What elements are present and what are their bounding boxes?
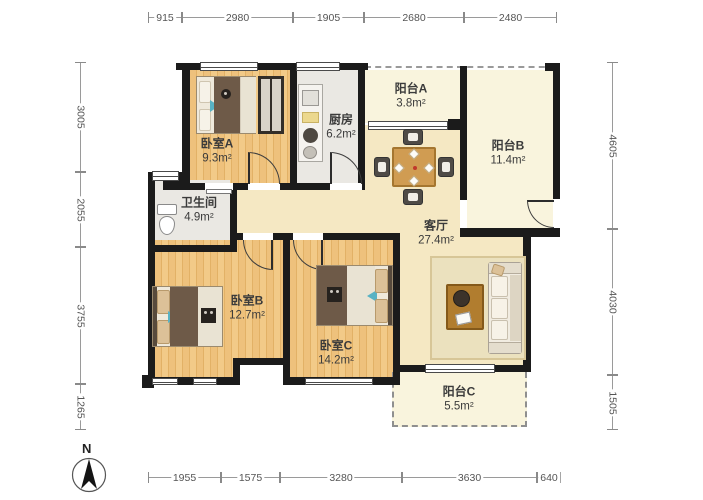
room-label-balcony-a: 阳台A3.8m² xyxy=(395,81,428,110)
sink xyxy=(302,90,319,106)
bed-bedroom-a xyxy=(196,76,256,134)
bed-bedroom-c xyxy=(316,265,393,326)
wall xyxy=(230,190,237,252)
dim-bottom-2: 1575 xyxy=(221,472,280,483)
dining-chair xyxy=(403,189,423,205)
bathroom-sliding-door xyxy=(206,189,232,194)
plant xyxy=(453,290,470,307)
north-compass-icon xyxy=(70,456,108,494)
dim-right-3: 1505 xyxy=(607,375,618,430)
dim-left-1: 3005 xyxy=(75,62,86,172)
bedroom-b-window-2 xyxy=(193,378,217,385)
room-label-bathroom: 卫生间4.9m² xyxy=(181,195,217,224)
toilet-tank xyxy=(157,204,177,215)
bedroom-b-window-1 xyxy=(152,378,178,385)
bedroom-c-door-gap xyxy=(293,233,323,240)
dim-top-4: 2680 xyxy=(364,12,464,23)
dim-bottom-4: 3630 xyxy=(402,472,537,483)
book xyxy=(455,312,472,326)
room-label-living-room: 客厅27.4m² xyxy=(418,218,454,247)
cooktop xyxy=(303,128,318,143)
balcony-c-slider xyxy=(425,364,495,373)
bedroom-a-door-gap xyxy=(248,183,280,190)
room-label-balcony-b: 阳台B11.4m² xyxy=(491,138,526,167)
wall xyxy=(448,119,460,130)
room-label-kitchen: 厨房6.2m² xyxy=(326,112,355,141)
wall xyxy=(148,245,237,252)
dim-right-1: 4605 xyxy=(607,62,618,229)
dining-chair xyxy=(374,157,390,177)
dim-right-2: 4030 xyxy=(607,229,618,375)
kitchen-window xyxy=(296,62,340,71)
bedroom-b-door-gap xyxy=(243,233,273,240)
sofa xyxy=(488,262,522,354)
wall xyxy=(233,358,240,385)
coffee-table xyxy=(446,284,484,330)
dining-table xyxy=(392,147,436,187)
wardrobe-bedroom-a xyxy=(258,76,284,134)
dim-bottom-1: 1955 xyxy=(148,472,221,483)
dining-chair xyxy=(403,129,423,145)
dim-bottom-5: 640 xyxy=(537,472,561,483)
dim-top-5: 2480 xyxy=(464,12,557,23)
bedroom-b-floor-lower xyxy=(155,360,233,378)
wall xyxy=(182,63,190,190)
dim-top-1: 915 xyxy=(148,12,182,23)
wall xyxy=(290,63,297,190)
wall xyxy=(393,233,400,385)
dim-top-2: 2980 xyxy=(182,12,293,23)
floor-plan: 卧室A9.3m² 厨房6.2m² 阳台A3.8m² 阳台B11.4m² 卫生间4… xyxy=(0,0,703,500)
bedroom-c-window xyxy=(305,378,373,385)
north-label: N xyxy=(82,441,91,456)
wall xyxy=(460,228,560,237)
dining-chair xyxy=(438,157,454,177)
wall xyxy=(460,66,467,200)
sofa-armrest xyxy=(489,342,521,353)
dim-left-3: 3755 xyxy=(75,247,86,384)
dim-top-3: 1905 xyxy=(293,12,364,23)
bedroom-a-window xyxy=(200,62,258,71)
sofa-back xyxy=(510,275,521,341)
wall xyxy=(233,358,290,365)
bathroom-window xyxy=(152,171,179,181)
dim-left-4: 1265 xyxy=(75,384,86,430)
wall xyxy=(553,63,560,200)
room-label-bedroom-c: 卧室C14.2m² xyxy=(318,338,354,367)
kitchen-door-gap xyxy=(330,183,362,190)
entry-door-gap xyxy=(553,199,560,228)
dim-left-2: 2055 xyxy=(75,172,86,247)
room-label-balcony-c: 阳台C5.5m² xyxy=(443,384,476,413)
bed-bedroom-b xyxy=(152,286,223,347)
room-label-bedroom-a: 卧室A9.3m² xyxy=(201,136,234,165)
dim-bottom-3: 3280 xyxy=(280,472,402,483)
wall xyxy=(148,172,155,385)
room-label-bedroom-b: 卧室B12.7m² xyxy=(229,293,265,322)
kitchen-counter xyxy=(298,84,323,162)
